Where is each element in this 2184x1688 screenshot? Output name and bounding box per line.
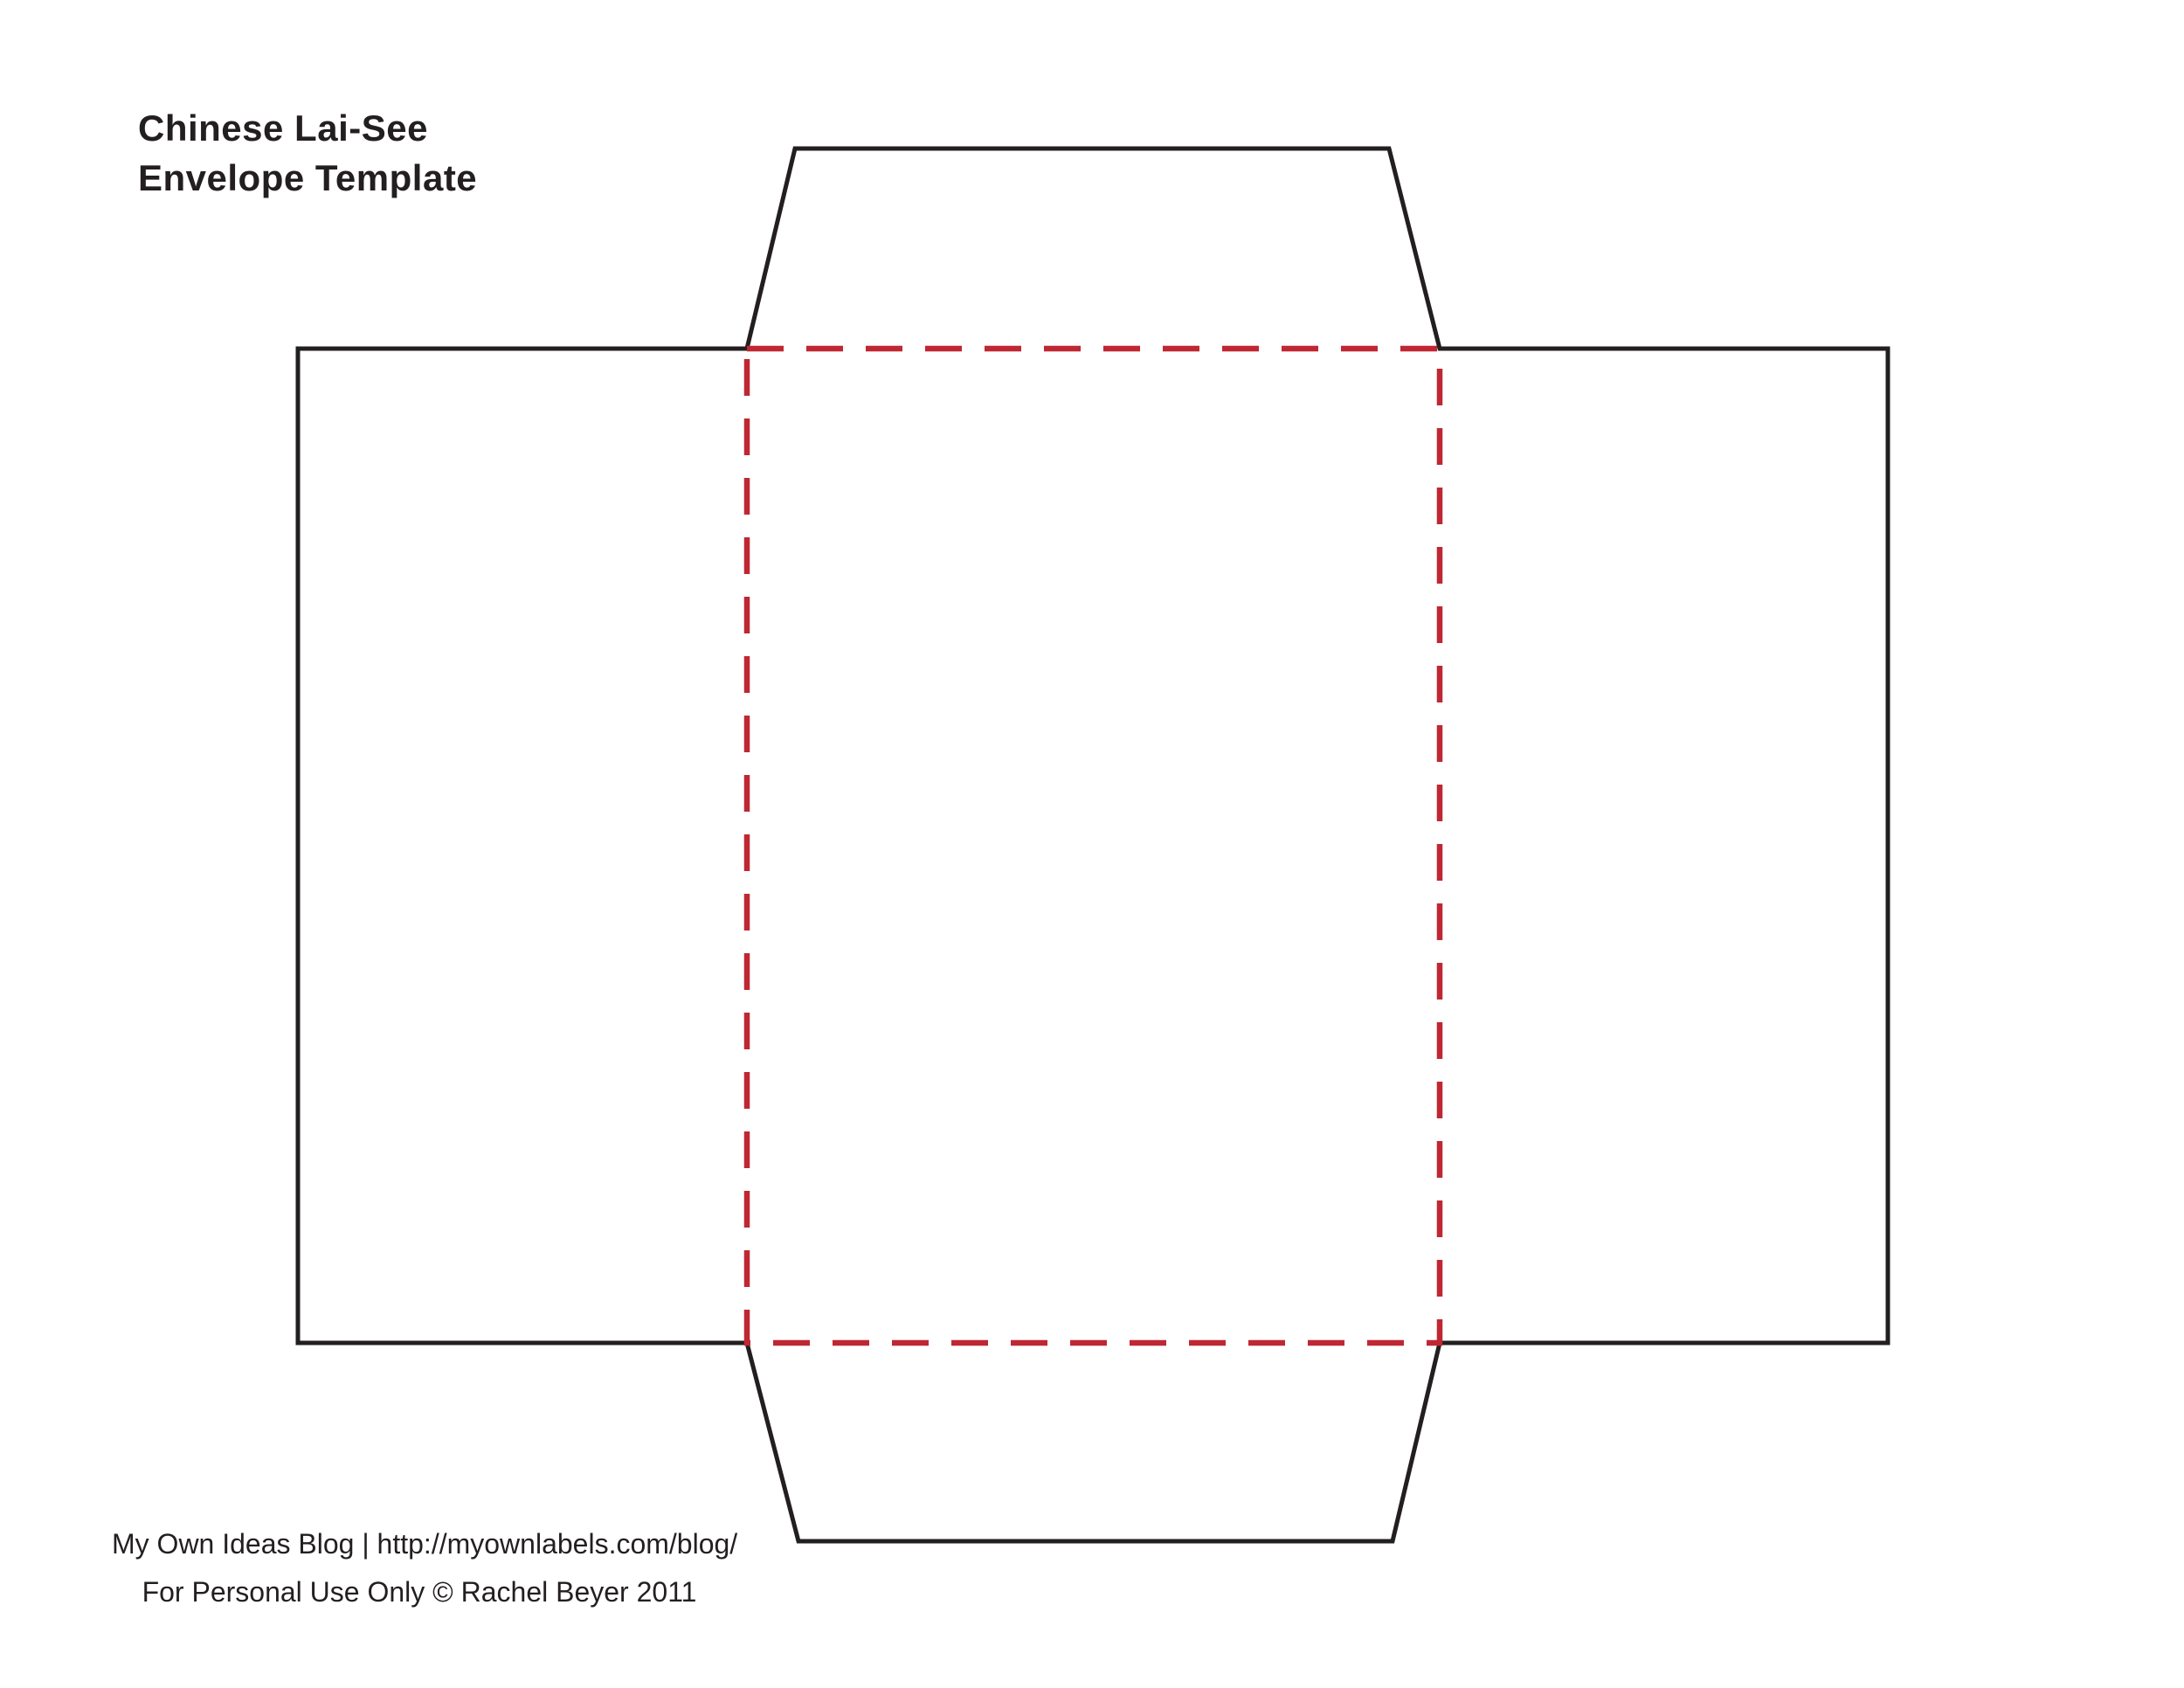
footer-credit: My Own Ideas Blog | http://myownlabels.c… [112,1520,727,1616]
footer-blog-credit: My Own Ideas Blog | http://myownlabels.c… [112,1520,727,1568]
envelope-fold-line-rect [747,349,1440,1343]
envelope-template-figure [0,0,2184,1688]
envelope-cut-outline [298,149,1888,1541]
printable-template-page: Chinese Lai-See Envelope Template My Own… [0,0,2184,1688]
footer-copyright: For Personal Use Only © Rachel Beyer 201… [112,1568,727,1616]
